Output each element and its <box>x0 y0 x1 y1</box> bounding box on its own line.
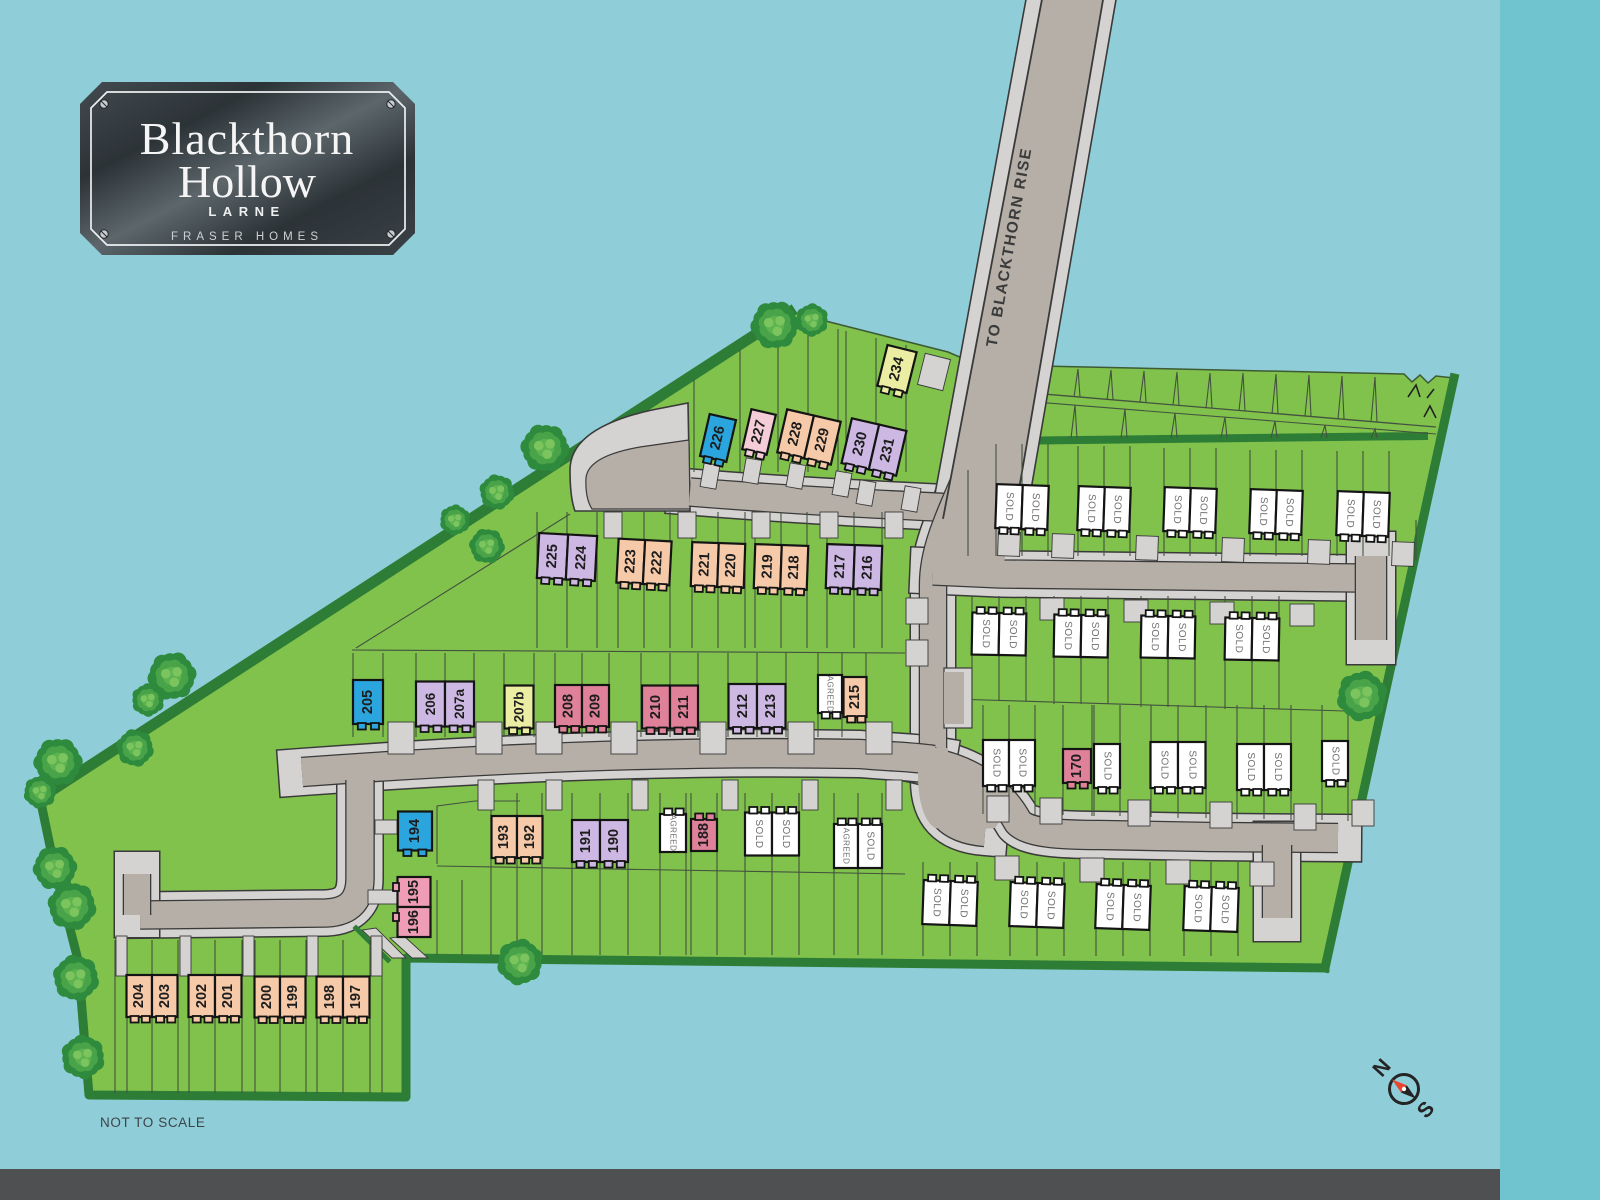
svg-text:SOLD: SOLD <box>780 819 791 848</box>
svg-text:197: 197 <box>348 985 364 1009</box>
svg-text:SOLD: SOLD <box>1257 497 1269 527</box>
svg-text:SOLD: SOLD <box>1197 496 1209 526</box>
svg-text:SOLD: SOLD <box>1176 623 1188 652</box>
svg-text:170: 170 <box>1069 754 1085 778</box>
svg-text:193: 193 <box>496 825 512 849</box>
svg-text:201: 201 <box>220 984 236 1008</box>
svg-text:SOLD: SOLD <box>980 619 992 648</box>
svg-text:221: 221 <box>696 552 713 577</box>
svg-text:196: 196 <box>406 910 422 934</box>
svg-text:SOLD: SOLD <box>1102 751 1113 780</box>
svg-text:207a: 207a <box>452 688 467 719</box>
svg-text:SOLD: SOLD <box>1104 892 1116 922</box>
svg-text:SOLD: SOLD <box>1029 493 1041 523</box>
svg-text:SOLD: SOLD <box>1130 893 1142 923</box>
svg-text:NOT TO SCALE: NOT TO SCALE <box>100 1115 205 1130</box>
svg-text:FRASER HOMES: FRASER HOMES <box>171 231 323 243</box>
svg-text:202: 202 <box>194 984 210 1008</box>
svg-text:SOLD: SOLD <box>1017 748 1028 777</box>
svg-text:224: 224 <box>573 545 590 570</box>
svg-text:SOLD: SOLD <box>1062 621 1074 650</box>
svg-text:SOLD: SOLD <box>931 888 943 918</box>
svg-text:192: 192 <box>522 825 538 849</box>
svg-text:SOLD: SOLD <box>1233 624 1245 653</box>
svg-text:223: 223 <box>622 549 639 574</box>
svg-text:SOLD: SOLD <box>1044 891 1056 921</box>
svg-text:209: 209 <box>588 694 604 718</box>
svg-text:SOLD: SOLD <box>991 748 1002 777</box>
svg-text:AGREED: AGREED <box>842 828 851 865</box>
svg-text:Hollow: Hollow <box>178 156 317 207</box>
svg-text:SOLD: SOLD <box>1085 494 1097 524</box>
svg-text:SOLD: SOLD <box>1089 622 1101 651</box>
svg-text:218: 218 <box>786 555 803 580</box>
svg-text:200: 200 <box>259 985 275 1009</box>
svg-text:SOLD: SOLD <box>865 831 876 860</box>
svg-text:SOLD: SOLD <box>1007 620 1019 649</box>
svg-text:SOLD: SOLD <box>1344 499 1356 529</box>
svg-text:225: 225 <box>544 544 561 569</box>
svg-text:220: 220 <box>723 553 740 578</box>
svg-text:194: 194 <box>407 819 423 843</box>
svg-text:SOLD: SOLD <box>1245 752 1256 781</box>
svg-text:203: 203 <box>157 984 173 1008</box>
svg-text:SOLD: SOLD <box>1330 746 1341 775</box>
svg-text:195: 195 <box>406 880 422 904</box>
svg-text:SOLD: SOLD <box>1283 498 1295 528</box>
svg-text:SOLD: SOLD <box>1149 622 1161 651</box>
svg-text:AGREED: AGREED <box>826 676 835 713</box>
svg-text:210: 210 <box>648 695 664 719</box>
svg-text:SOLD: SOLD <box>1171 495 1183 525</box>
svg-text:SOLD: SOLD <box>1159 750 1170 779</box>
svg-text:SOLD: SOLD <box>1272 752 1283 781</box>
svg-text:211: 211 <box>676 695 692 718</box>
svg-text:LARNE: LARNE <box>208 204 285 219</box>
svg-text:199: 199 <box>285 985 301 1009</box>
svg-text:208: 208 <box>561 694 577 718</box>
svg-text:SOLD: SOLD <box>1111 495 1123 525</box>
svg-text:AGREED: AGREED <box>669 815 678 852</box>
svg-text:SOLD: SOLD <box>1018 890 1030 920</box>
svg-text:216: 216 <box>859 555 876 580</box>
svg-text:SOLD: SOLD <box>1186 750 1197 779</box>
svg-text:SOLD: SOLD <box>957 889 969 919</box>
svg-text:219: 219 <box>759 554 776 579</box>
svg-text:190: 190 <box>606 829 622 853</box>
svg-text:213: 213 <box>763 694 779 718</box>
svg-text:198: 198 <box>322 985 338 1009</box>
svg-text:188: 188 <box>696 823 712 847</box>
svg-text:205: 205 <box>360 690 376 714</box>
svg-text:SOLD: SOLD <box>1370 500 1382 530</box>
svg-text:SOLD: SOLD <box>1003 492 1015 522</box>
svg-text:222: 222 <box>649 550 666 575</box>
svg-text:SOLD: SOLD <box>1218 895 1230 925</box>
svg-text:206: 206 <box>423 692 438 715</box>
svg-text:191: 191 <box>578 829 594 853</box>
svg-text:217: 217 <box>832 554 849 579</box>
svg-text:204: 204 <box>131 984 147 1008</box>
svg-text:SOLD: SOLD <box>1192 894 1204 924</box>
svg-text:207b: 207b <box>512 692 527 723</box>
svg-text:212: 212 <box>735 694 751 718</box>
svg-text:215: 215 <box>847 685 863 709</box>
svg-text:SOLD: SOLD <box>1260 625 1272 654</box>
svg-text:SOLD: SOLD <box>753 819 764 848</box>
